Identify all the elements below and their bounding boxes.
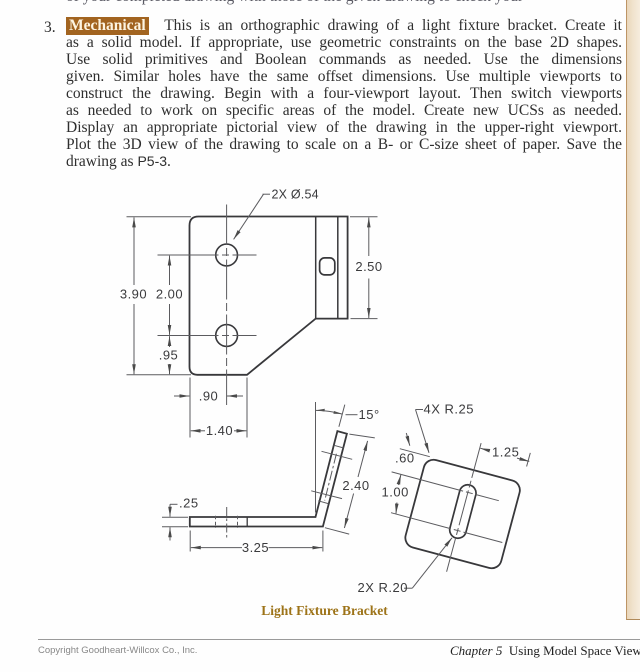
svg-text:1.00: 1.00 <box>382 485 409 500</box>
svg-text:.25: .25 <box>179 496 199 511</box>
svg-text:1.25: 1.25 <box>492 445 519 460</box>
svg-text:3.90: 3.90 <box>120 287 147 302</box>
svg-text:1.40: 1.40 <box>206 423 233 438</box>
svg-text:.95: .95 <box>159 348 179 363</box>
svg-text:15°: 15° <box>359 407 380 422</box>
svg-text:4X R.25: 4X R.25 <box>424 402 474 417</box>
svg-text:.90: .90 <box>199 389 219 404</box>
svg-text:3.25: 3.25 <box>242 540 269 555</box>
svg-text:.60: .60 <box>395 451 415 466</box>
svg-text:2.50: 2.50 <box>355 259 382 274</box>
svg-text:2X R.20: 2X R.20 <box>358 580 408 595</box>
svg-text:2X Ø.54: 2X Ø.54 <box>272 188 319 202</box>
svg-text:2.00: 2.00 <box>156 287 183 302</box>
svg-text:2.40: 2.40 <box>342 478 369 493</box>
